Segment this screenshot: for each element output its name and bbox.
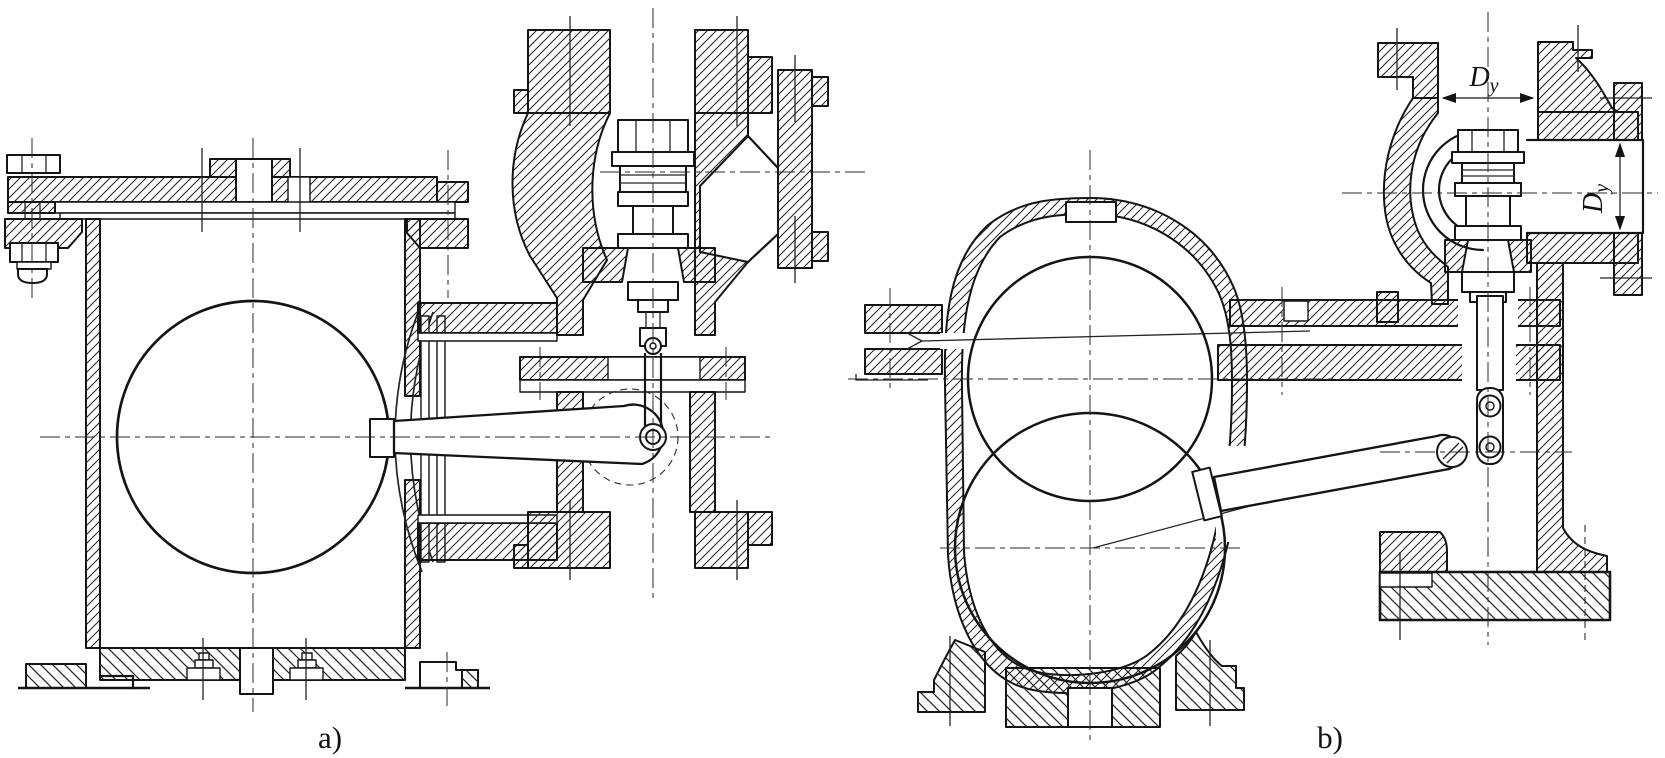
float-trap-engineering-drawing: a) [0,0,1665,758]
cover-plate [5,148,468,298]
dim-dy-side-label: Dy [1578,184,1613,214]
valve-stem-link-b [1477,296,1503,464]
valve-assembly-b [1378,25,1652,640]
dim-dy-side: Dy [1578,144,1620,229]
valve-assembly-a [512,16,828,580]
foot-left [26,664,86,688]
body-shell [945,198,1247,693]
view-b-float-trap-section: Dy Dy b) [848,12,1658,755]
float-lever-a [394,405,663,464]
top-plug [1066,202,1116,222]
caption-view-b: b) [1317,720,1343,755]
drawing-canvas: a) [0,0,1665,758]
view-a-float-trap-section: a) [5,8,868,755]
feet-b [918,632,1244,727]
float-boss [370,419,394,457]
dim-dy-top-label: Dy [1468,62,1498,97]
caption-view-a: a) [318,720,342,755]
